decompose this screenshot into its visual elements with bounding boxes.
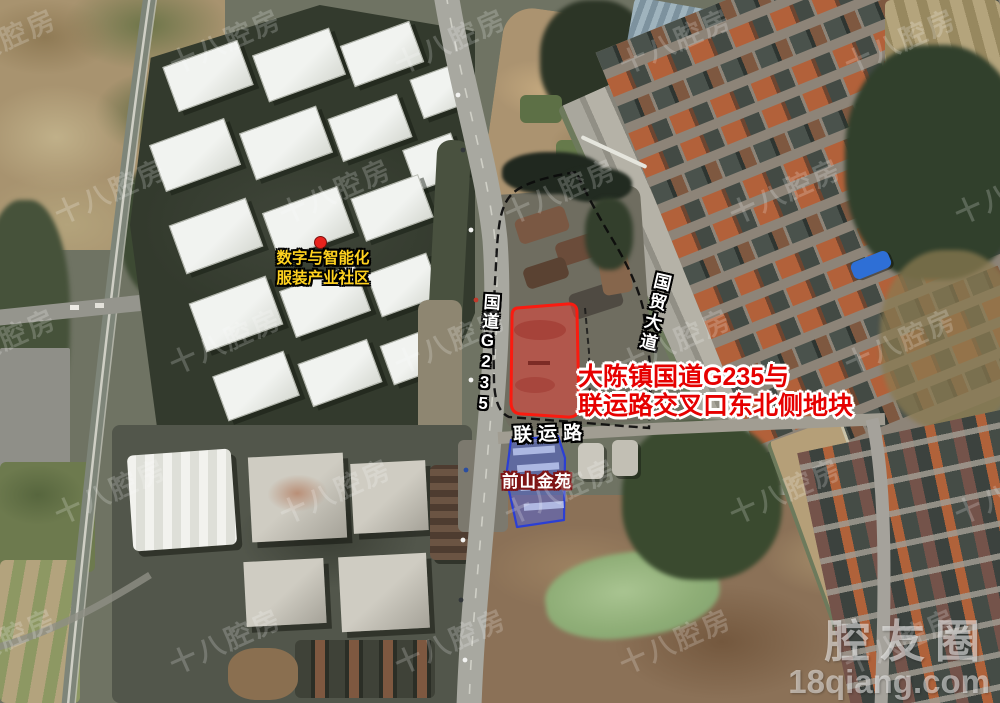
watermark-tile: 十八腔房 — [837, 0, 962, 82]
watermark-tile: 十八腔房 — [947, 147, 1000, 231]
watermark-tile: 十八腔房 — [722, 447, 847, 531]
watermark-tile: 十八腔房 — [162, 297, 287, 381]
watermark-tile: 十八腔房 — [387, 0, 512, 82]
watermark-tile: 十八腔房 — [947, 447, 1000, 531]
watermark-tile: 十八腔房 — [47, 447, 172, 531]
watermark-tile: 十八腔房 — [837, 297, 962, 381]
watermark-tile: 十八腔房 — [0, 597, 63, 681]
watermark-tile: 十八腔房 — [612, 0, 737, 82]
watermark-tile: 十八腔房 — [837, 597, 962, 681]
watermark-tile: 十八腔房 — [722, 147, 847, 231]
watermark-tile: 十八腔房 — [497, 447, 622, 531]
watermark-tile: 十八腔房 — [612, 297, 737, 381]
watermark-tile: 十八腔房 — [162, 597, 287, 681]
watermark-tile: 十八腔房 — [387, 297, 512, 381]
satellite-map-image: 数字与智能化 服装产业社区 国道G235 国贸大道 联运路 大陈镇国道G235与… — [0, 0, 1000, 703]
watermark-tile: 十八腔房 — [272, 447, 397, 531]
watermark-tile: 十八腔房 — [0, 0, 63, 82]
watermark-tile: 十八腔房 — [47, 147, 172, 231]
watermark-tile: 十八腔房 — [497, 147, 622, 231]
watermark-tile: 十八腔房 — [162, 0, 287, 82]
watermark-tile: 十八腔房 — [612, 597, 737, 681]
watermark-tile: 十八腔房 — [387, 597, 512, 681]
watermark-tile: 十八腔房 — [272, 147, 397, 231]
watermark-tile: 十八腔房 — [0, 297, 63, 381]
watermark-layer: 十八腔房十八腔房十八腔房十八腔房十八腔房十八腔房十八腔房十八腔房十八腔房十八腔房… — [0, 0, 1000, 703]
